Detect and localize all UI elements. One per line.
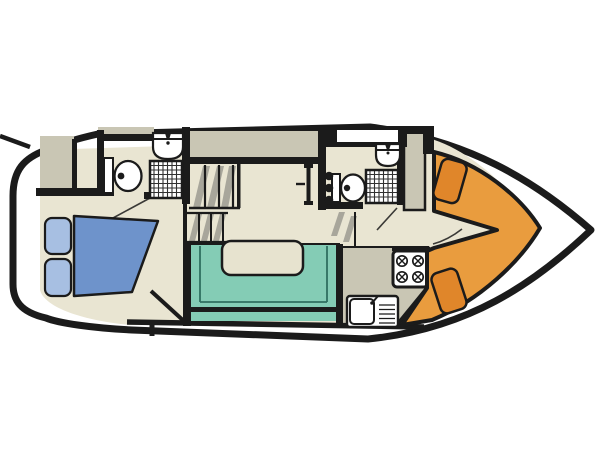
forward-cabinet [404,132,425,210]
wall-knob [325,196,334,205]
boat-floor-plan [0,0,605,454]
handrail-cap [304,201,313,205]
bow-corner-wall-b [423,126,434,154]
faucet-dot [166,141,169,144]
galley-left-wall [336,244,343,327]
aft-cabin-right-wall [183,204,187,246]
toilet-cistern [104,158,113,193]
dinette-back-wall [183,245,191,326]
boat-floor-plan-page [0,0,605,454]
aft-wardrobe [40,136,74,191]
galley-faucet-dot [370,301,374,305]
dinette-table [222,241,303,275]
side-deck-bottom-wall [188,157,320,164]
dinette-back-strip [188,312,338,321]
steps-side-wall [237,164,241,208]
skylight-hatch [336,129,399,143]
pillow [45,259,71,296]
side-deck-band [188,131,320,159]
toilet-flush-dot [118,173,125,180]
wall-knob [325,172,334,181]
aft-bath-top-wall [98,134,154,141]
handrail-bar [307,166,311,203]
pillow [45,218,71,254]
fwd-bath-bottom-wall [318,202,363,209]
faucet-dot [387,152,390,155]
toilet-flush-dot [344,185,350,191]
saloon-dinette [184,241,340,321]
handrail-cap [304,164,313,168]
dinette-back-band [184,307,340,312]
wardrobe-divider-wall [72,139,77,190]
wall-knob [325,184,334,193]
mooring-line [0,136,30,147]
